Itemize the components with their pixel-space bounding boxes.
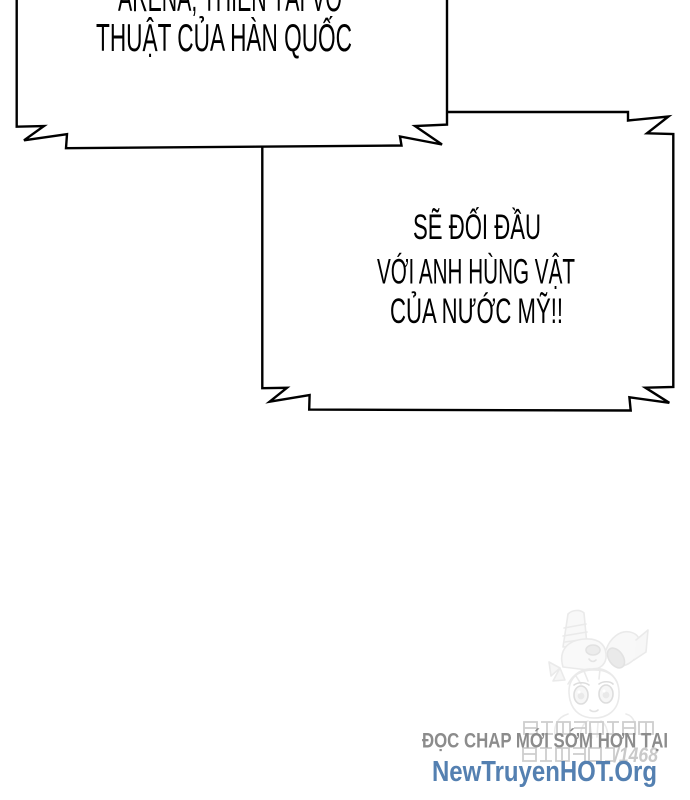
svg-text:ĐỌC CHAP MỚI SỚM HƠN TẠI: ĐỌC CHAP MỚI SỚM HƠN TẠI	[422, 729, 668, 753]
svg-text:NewTruyenHOT.Org: NewTruyenHOT.Org	[432, 756, 657, 788]
svg-text:THUẬT CỦA HÀN QUỐC: THUẬT CỦA HÀN QUỐC	[96, 15, 352, 60]
svg-text:VỚI ANH HÙNG VẬT: VỚI ANH HÙNG VẬT	[377, 253, 575, 292]
svg-text:SẼ ĐỐI ĐẦU: SẼ ĐỐI ĐẦU	[413, 207, 541, 247]
svg-text:CỦA NƯỚC MỸ!!: CỦA NƯỚC MỸ!!	[390, 291, 563, 331]
